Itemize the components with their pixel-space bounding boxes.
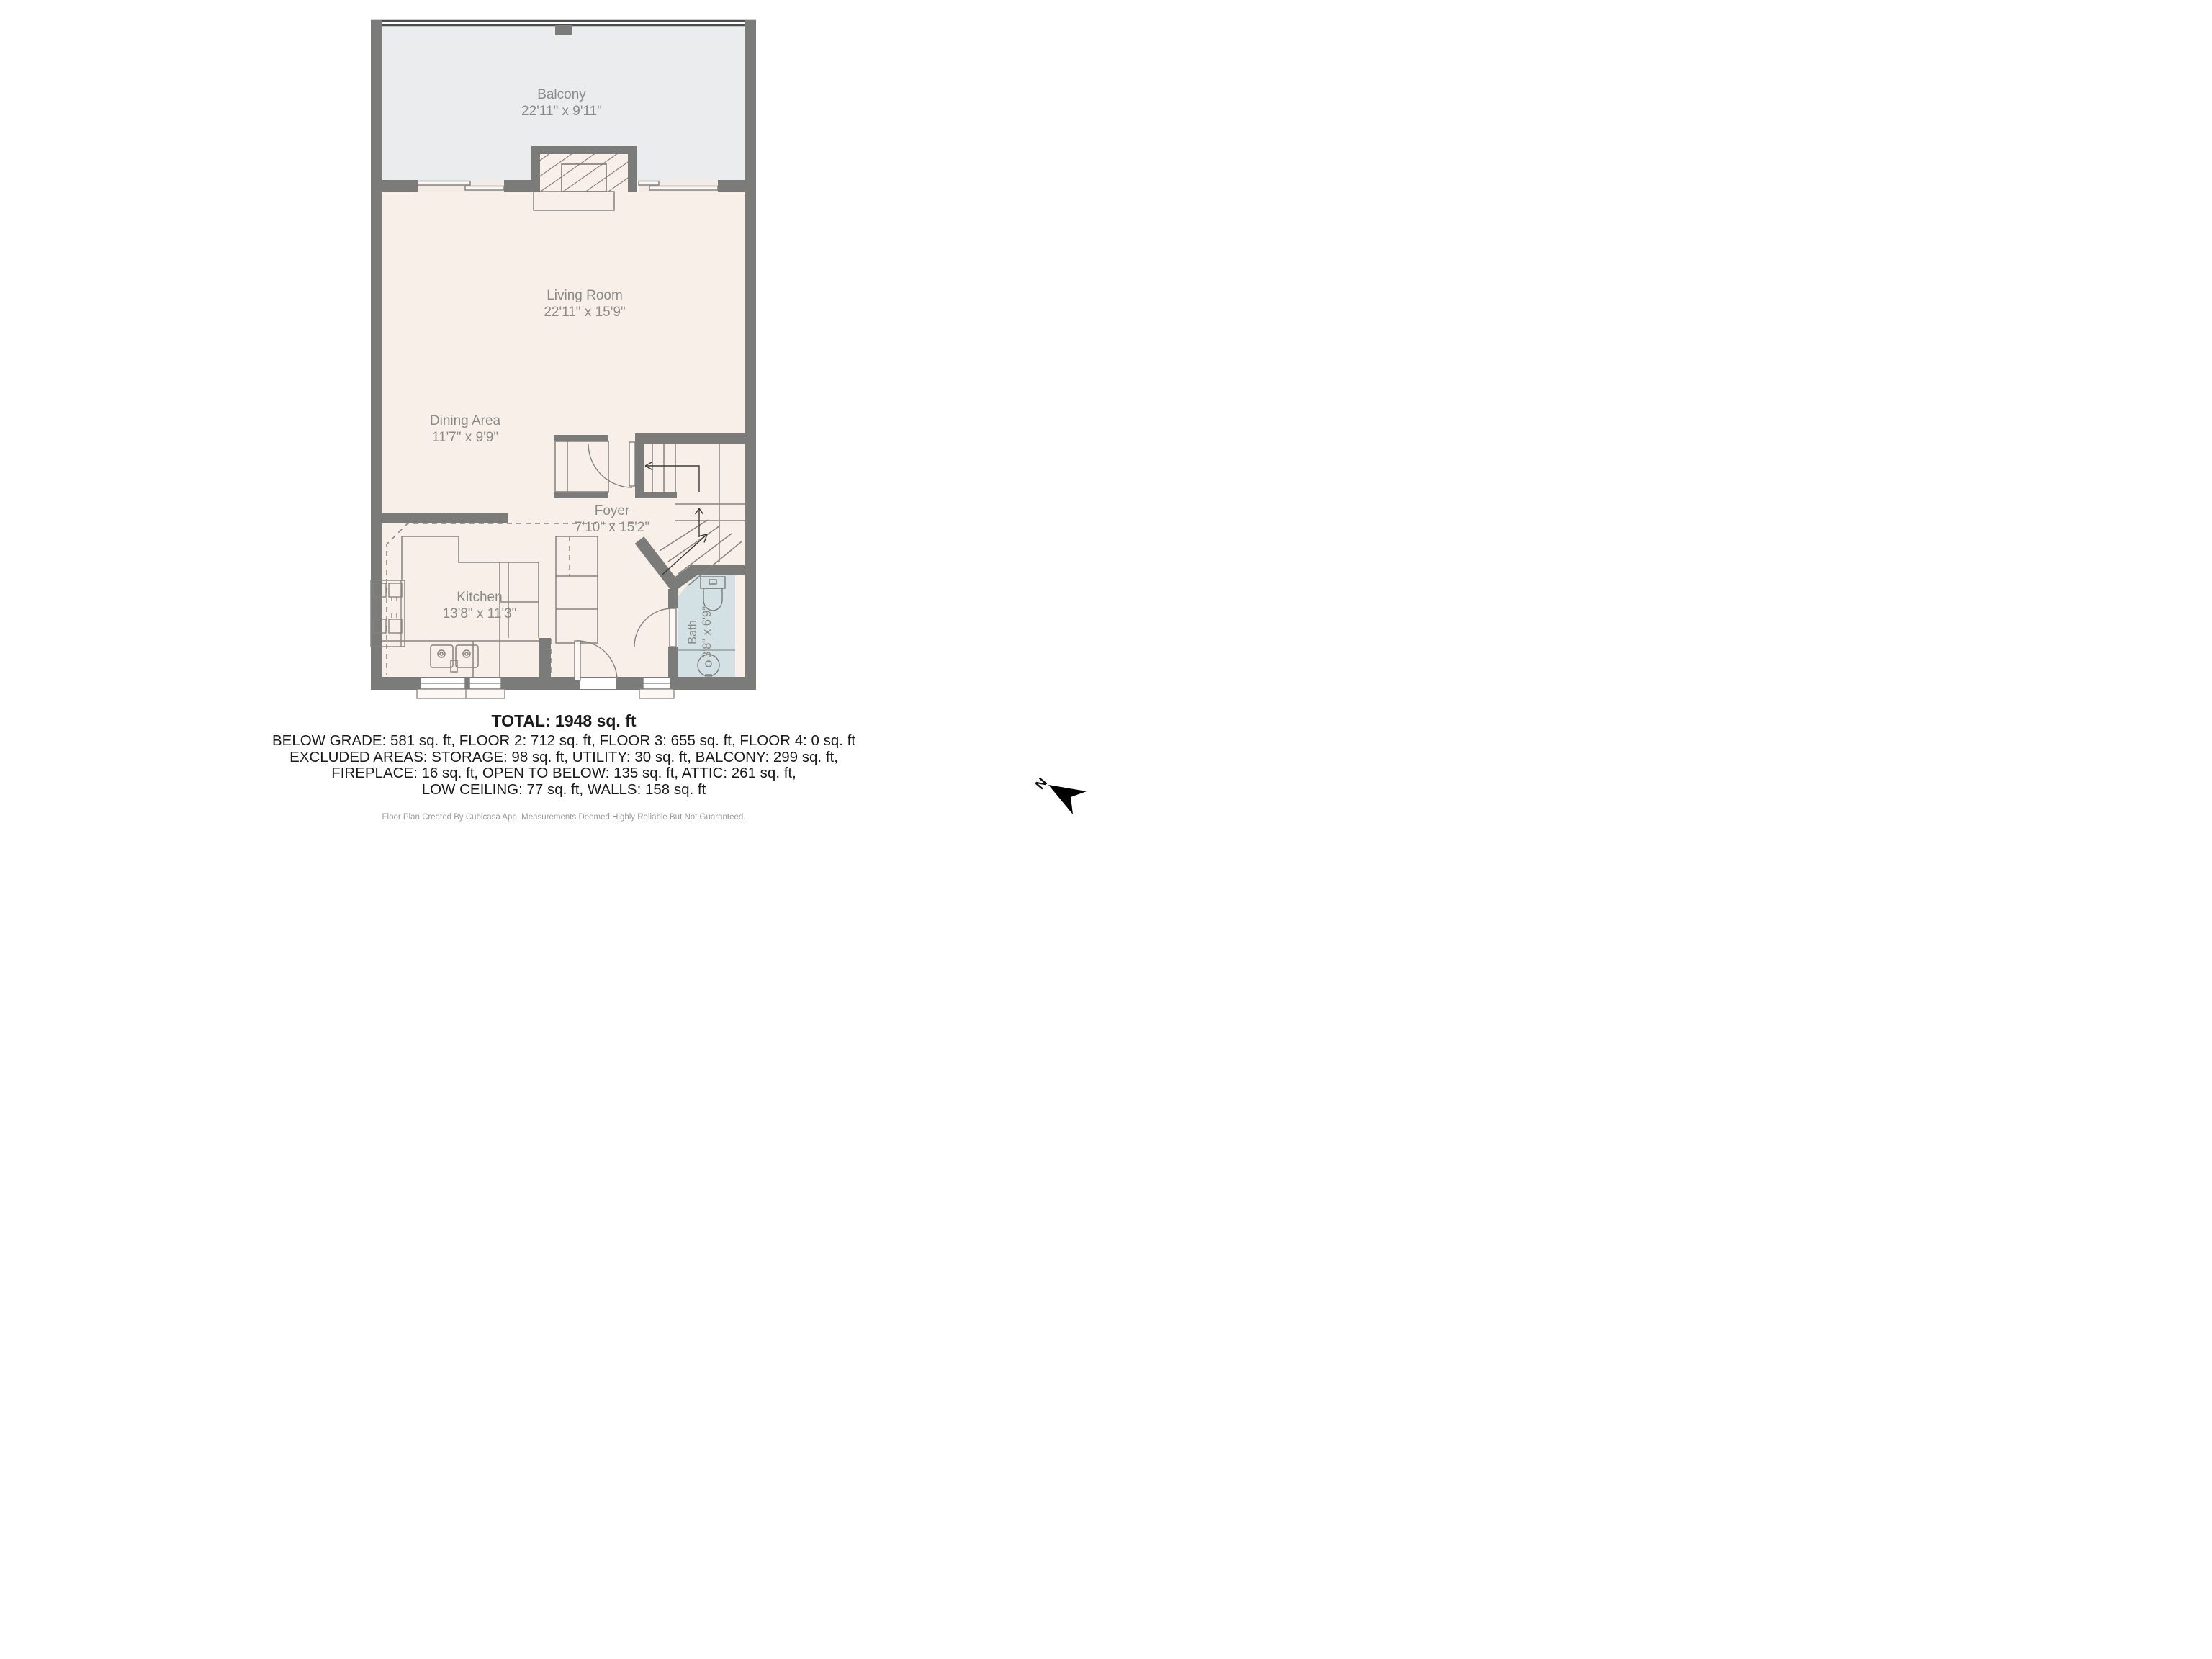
room-name: Balcony [537,87,586,102]
kitchen-label: Kitchen 13'8" x 11'3" [443,589,517,622]
summary-line: FIREPLACE: 16 sq. ft, OPEN TO BELOW: 135… [272,765,855,782]
room-dims: 11'7" x 9'9" [430,429,500,446]
north-arrow-icon: N [1033,775,1087,814]
room-name: Foyer [595,503,630,518]
disclaimer-text: Floor Plan Created By Cubicasa App. Meas… [272,813,855,822]
area-summary: TOTAL: 1948 sq. ft BELOW GRADE: 581 sq. … [272,711,855,822]
floor-plan-page: N Balcony 22'11" x 9'11" Living Room 22'… [0,0,1106,829]
room-dims: 7'10" x 15'2" [575,519,649,536]
summary-line: LOW CEILING: 77 sq. ft, WALLS: 158 sq. f… [272,782,855,799]
total-area: TOTAL: 1948 sq. ft [272,711,855,731]
summary-line: BELOW GRADE: 581 sq. ft, FLOOR 2: 712 sq… [272,733,855,750]
room-name: Bath [685,606,700,658]
living-room-label: Living Room 22'11" x 15'9" [544,287,625,320]
north-label: N [1033,775,1051,793]
room-name: Kitchen [457,590,502,605]
room-dims: 22'11" x 15'9" [544,304,625,320]
floor-plan-drawing: N [0,0,1106,829]
room-name: Dining Area [430,413,500,428]
foyer-label: Foyer 7'10" x 15'2" [575,503,649,536]
summary-line: EXCLUDED AREAS: STORAGE: 98 sq. ft, UTIL… [272,750,855,766]
dining-area-label: Dining Area 11'7" x 9'9" [430,413,500,446]
balcony-label: Balcony 22'11" x 9'11" [521,86,602,120]
room-dims: 13'8" x 11'3" [443,606,517,622]
bath-label: Bath 3'8" x 6'9" [685,606,714,658]
room-name: Living Room [547,288,623,303]
room-dims: 3'8" x 6'9" [700,606,714,658]
room-dims: 22'11" x 9'11" [521,103,602,120]
